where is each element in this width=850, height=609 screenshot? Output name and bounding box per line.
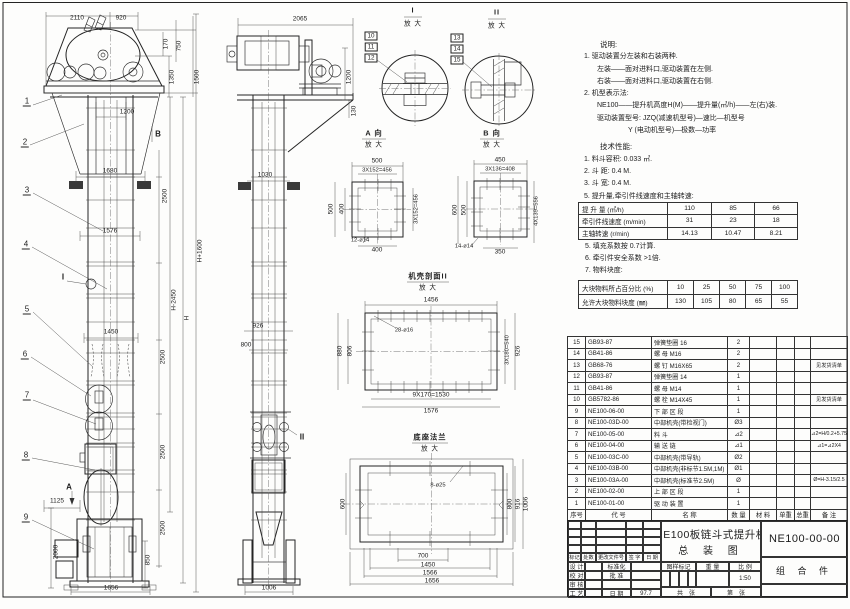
bom-header: 序号 <box>568 509 586 521</box>
bom-row: 1 NE100-01-00 驱 动 装 置 1 <box>568 498 848 510</box>
note-line: 1. 驱动装置分左装和右装两种. <box>584 51 846 63</box>
tech-item: 3. 斗 宽: 0.4 M. <box>584 178 846 190</box>
dimension-label: 12-ø14 <box>351 238 369 245</box>
view-a-marker: A <box>66 484 72 491</box>
perf-value: 14.13 <box>668 227 712 239</box>
tech-item: 5. 填充系数按 0.7计算. <box>585 241 835 253</box>
bom-header-row: 序号 代 号 名 称 数 量 材 料 单重 总重 备 注 <box>568 509 848 521</box>
dimension-label: 400 <box>372 247 383 254</box>
perf-value: 18 <box>755 215 798 227</box>
rev-header: 签 字 <box>626 553 643 562</box>
view-b-marker: B <box>155 131 161 138</box>
dimension-label: 806 <box>347 346 354 357</box>
dimension-label: 800 <box>241 342 252 349</box>
table-row: 主轴转速 (r/min) 14.13 10.47 8.21 <box>579 227 798 239</box>
dimension-label: 1456 <box>424 297 438 304</box>
bom-row: 5 NE100-03C-00 中部机壳(带导轨) Ø2 <box>568 452 848 464</box>
balloon-13: 13 <box>450 34 463 43</box>
dimension-label: 926 <box>253 323 264 330</box>
tech-item: 2. 斗 距: 0.4 M. <box>584 166 846 178</box>
tech-item: 1. 料斗容积: 0.033 ㎥. <box>584 154 846 166</box>
dimension-label: 放 大 <box>365 142 383 149</box>
dimension-label: 4X139=556 <box>534 196 541 226</box>
dimension-label: 750 <box>176 41 183 52</box>
lump-label: 允许大块物料块度 (㎜) <box>579 295 668 309</box>
bom-header: 材 料 <box>750 509 777 521</box>
parts-list-table: 15 GB93-87 弹簧垫圈 16 2 14 GB41-86 螺 母 M16 … <box>567 336 848 521</box>
dimension-label: 9X170=1530 <box>412 392 449 399</box>
dimension-label: 880 <box>337 346 344 357</box>
staff-label: 校 对 <box>568 571 585 580</box>
dimension-label: 放 大 <box>404 21 422 28</box>
performance-table: 提 升 量 (㎥/h) 110 85 66 牵引件线速度 (m/min) 31 … <box>578 202 798 240</box>
dimension-label: 2065 <box>293 16 307 23</box>
dimension-label: 2500 <box>160 521 167 535</box>
balloon-2: 2 <box>21 139 29 148</box>
perf-label: 提 升 量 (㎥/h) <box>579 203 668 215</box>
view-a-title: A 向 <box>365 130 382 137</box>
dimension-label: 1680 <box>103 168 117 175</box>
perf-value: 110 <box>668 203 712 215</box>
lump-value: 55 <box>772 295 798 309</box>
rev-header: 标记 <box>568 553 581 562</box>
bom-row: 4 NE100-03B-00 中部机壳(非标节1.5M,1M) Ø1 <box>568 463 848 475</box>
rev-header: 日 期 <box>643 553 661 562</box>
bom-header: 总重 <box>795 509 811 521</box>
lump-value: 10 <box>668 281 694 295</box>
balloon-1: 1 <box>23 98 31 107</box>
perf-value: 10.47 <box>712 227 755 239</box>
lump-value: 65 <box>746 295 772 309</box>
dimension-label: 600 <box>452 205 459 216</box>
balloon-4: 4 <box>22 241 30 250</box>
dimension-label: H-2450 <box>171 289 178 310</box>
dimension-label: 500 <box>328 204 335 215</box>
dimension-label: 放 大 <box>483 142 501 149</box>
dimension-label: H <box>184 316 191 321</box>
balloon-12: 12 <box>364 54 377 63</box>
note-line: Y (电动机型号)—极数—功率 <box>584 125 846 137</box>
dimension-label: 1450 <box>421 562 435 569</box>
dimension-label: 916 <box>515 499 522 510</box>
perf-label: 牵引件线速度 (m/min) <box>579 215 668 227</box>
lump-label: 大块物料所占百分比 (%) <box>579 281 668 295</box>
balloon-8: 8 <box>22 452 30 461</box>
dimension-label: 850 <box>145 555 152 566</box>
detail-i-marker: I <box>62 274 64 281</box>
detail-ii-marker: II <box>300 434 304 441</box>
bom-row: 10 GB5782-86 螺 栓 M14X45 1 见发货清单 <box>568 394 848 406</box>
bom-header: 数 量 <box>728 509 750 521</box>
notes-title: 说明: <box>584 39 846 51</box>
dimension-label: 14-ø14 <box>455 244 473 251</box>
perf-value: 31 <box>668 215 712 227</box>
staff-label: 标准化 <box>602 562 631 571</box>
dimension-label: 500 <box>461 205 468 216</box>
dimension-label: 920 <box>116 15 127 22</box>
detail-i-title: I <box>411 7 414 14</box>
note-line: 右装——面对进料口,驱动装置在右侧. <box>584 76 846 88</box>
lump-size-table: 大块物料所占百分比 (%) 10 25 50 75 100 允许大块物料块度 (… <box>578 280 798 309</box>
lump-value: 130 <box>668 295 694 309</box>
base-flange-title: 底座法兰 <box>413 434 446 441</box>
date-value: 97.7 <box>631 589 661 598</box>
dimension-label: 1450 <box>104 329 118 336</box>
dimension-label: 3X136=408 <box>485 167 515 174</box>
table-row: 牵引件线速度 (m/min) 31 23 18 <box>579 215 798 227</box>
dimension-label: 8-ø25 <box>430 483 445 490</box>
staff-label: 设 计 <box>568 562 585 571</box>
dimension-label: 3X152=456 <box>362 168 392 175</box>
dimension-label: 1500 <box>194 70 201 84</box>
bom-row: 2 NE100-02-00 上 部 区 段 1 <box>568 486 848 498</box>
rev-header: 更改文件号 <box>596 553 626 562</box>
drawing-title-line1: NE100板链斗式提升机 <box>661 527 761 542</box>
dimension-label: 800 <box>507 499 514 510</box>
tech-item: 7. 物料块度: <box>585 265 835 277</box>
dimension-label: 130 <box>351 106 358 117</box>
bom-row: 15 GB93-87 弹簧垫圈 16 2 <box>568 337 848 349</box>
bom-row: 13 GB68-76 螺 钉 M16X65 2 见发货清单 <box>568 360 848 372</box>
stamp-header: 图样标记 <box>661 562 696 571</box>
dimension-label: 1200 <box>346 70 353 84</box>
dimension-label: 600 <box>340 499 347 510</box>
dimension-label: 2500 <box>162 189 169 203</box>
dimension-label: 2500 <box>160 445 167 459</box>
drawing-title: NE100板链斗式提升机 总 装 图 <box>661 521 761 562</box>
table-row: 大块物料所占百分比 (%) 10 25 50 75 100 <box>579 281 798 295</box>
staff-label: 审 核 <box>568 580 585 589</box>
balloon-3: 3 <box>23 187 31 196</box>
dimension-label: 1125 <box>50 498 64 505</box>
balloon-15: 15 <box>450 56 463 65</box>
bom-header: 备 注 <box>811 509 848 521</box>
balloon-9: 9 <box>22 514 30 523</box>
perf-value: 66 <box>755 203 798 215</box>
perf-value: 85 <box>712 203 755 215</box>
dimension-label: 170 <box>163 39 170 50</box>
tech-title: 技术性能: <box>584 141 846 153</box>
bom-row: 8 NE100-03D-00 中部机壳(带检视门) Ø3 <box>568 417 848 429</box>
rev-header: 处数 <box>581 553 596 562</box>
dimension-label: 500 <box>372 158 383 165</box>
dimension-label: 放 大 <box>488 23 506 30</box>
note-line: 驱动装置型号: JZQ(减速机型号)—速比—机型号 <box>584 113 846 125</box>
lump-value: 80 <box>720 295 746 309</box>
dimension-label: 1030 <box>258 172 272 179</box>
bom-row: 14 GB41-86 螺 母 M16 2 <box>568 348 848 360</box>
bom-header: 单重 <box>777 509 795 521</box>
dimension-label: 2500 <box>160 350 167 364</box>
balloon-11: 11 <box>365 43 378 52</box>
dimension-label: 450 <box>495 157 506 164</box>
title-block: 标记 处数 更改文件号 签 字 日 期 设 计 标准化 校 对 批 准 审 核 … <box>567 520 847 597</box>
bom-row: 12 GB93-87 弹簧垫圈 14 1 <box>568 371 848 383</box>
dimension-label: 放 大 <box>421 446 439 453</box>
balloon-7: 7 <box>23 392 31 401</box>
bom-header: 代 号 <box>586 509 652 521</box>
stamp-header: 比 例 <box>729 562 761 571</box>
dimension-label: 1576 <box>103 228 117 235</box>
lump-value: 105 <box>694 295 720 309</box>
balloon-10: 10 <box>364 32 377 41</box>
perf-value: 23 <box>712 215 755 227</box>
dimension-label: 2000 <box>53 545 60 559</box>
bom-row: 9 NE100-06-00 下 部 区 段 1 <box>568 406 848 418</box>
lump-value: 75 <box>746 281 772 295</box>
note-line: 左装——面对进料口,驱动装置在左侧. <box>584 64 846 76</box>
drawing-number: NE100-00-00 <box>761 521 848 557</box>
lump-value: 25 <box>694 281 720 295</box>
dimension-label: 1656 <box>104 585 118 592</box>
dimension-label: 926 <box>515 346 522 357</box>
staff-label: 批 准 <box>602 571 631 580</box>
balloon-5: 5 <box>23 306 31 315</box>
bom-header: 名 称 <box>652 509 728 521</box>
staff-label: 日 期 <box>602 589 631 598</box>
dimension-label: 1350 <box>169 70 176 84</box>
drawing-title-line2: 总 装 图 <box>678 542 744 557</box>
scale-value: 1:50 <box>729 571 761 587</box>
dimension-label: 2110 <box>70 15 84 22</box>
table-row: 提 升 量 (㎥/h) 110 85 66 <box>579 203 798 215</box>
dimension-label: 3X152=456 <box>414 194 421 224</box>
casing-section-title: 机壳剖面II <box>408 273 447 280</box>
sheet-number: 第 张 <box>711 587 761 598</box>
perf-label: 主轴转速 (r/min) <box>579 227 668 239</box>
detail-ii-title: II <box>494 9 500 16</box>
note-line: NE100——提升机高度H(M)——提升量(㎥/h)——左(右)装. <box>584 100 846 112</box>
bom-row: 3 NE100-03A-00 中部机壳(标准节2.5M) Ø Ø=H-3.15/… <box>568 475 848 487</box>
dimension-label: 28-ø16 <box>395 328 413 335</box>
note-line: 2. 机型表示法: <box>584 88 846 100</box>
dimension-label: 放 大 <box>419 285 437 292</box>
bom-row: 7 NE100-05-00 料 斗 ⊿2 ⊿2=H/0.2+5.75 <box>568 429 848 441</box>
lump-value: 100 <box>772 281 798 295</box>
bom-row: 11 GB41-86 螺 母 M14 1 <box>568 383 848 395</box>
dimension-label: 1576 <box>424 408 438 415</box>
perf-value: 8.21 <box>755 227 798 239</box>
dimension-label: 3X180=540 <box>505 335 512 365</box>
tech-item: 5. 提升量,牵引件线速度和主轴转速: <box>584 191 846 203</box>
dimension-label: 350 <box>495 249 506 256</box>
staff-label <box>602 580 631 589</box>
part-type: 组 合 件 <box>761 557 848 584</box>
lump-value: 50 <box>720 281 746 295</box>
dimension-label: H+1600 <box>197 240 204 263</box>
drawing-sheet: 2110920170750135015001200168015761450250… <box>0 0 850 609</box>
staff-label: 工 艺 <box>568 589 585 598</box>
dimension-label: 1656 <box>425 578 439 585</box>
dimension-label: 1006 <box>523 497 530 511</box>
dimension-label: 1200 <box>120 109 134 116</box>
view-b-title: B 向 <box>483 130 501 137</box>
notes-block-2: 5. 填充系数按 0.7计算. 6. 牵引件安全系数 >1倍. 7. 物料块度: <box>585 241 835 278</box>
dimension-label: 1566 <box>423 570 437 577</box>
table-row: 允许大块物料块度 (㎜) 130 105 80 65 55 <box>579 295 798 309</box>
dimension-label: 1006 <box>262 585 276 592</box>
balloon-14: 14 <box>450 45 463 54</box>
dimension-label: 400 <box>339 204 346 215</box>
balloon-6: 6 <box>21 351 29 360</box>
sheet-total: 共 张 <box>661 587 711 598</box>
notes-block: 说明: 1. 驱动装置分左装和右装两种. 左装——面对进料口,驱动装置在左侧. … <box>584 39 846 203</box>
bom-row: 6 NE100-04-00 输 送 链 ⊿1 ⊿1=⊿2X4 <box>568 440 848 452</box>
tech-item: 6. 牵引件安全系数 >1倍. <box>585 253 835 265</box>
dimension-label: 700 <box>418 553 429 560</box>
stamp-header: 重 量 <box>696 562 729 571</box>
